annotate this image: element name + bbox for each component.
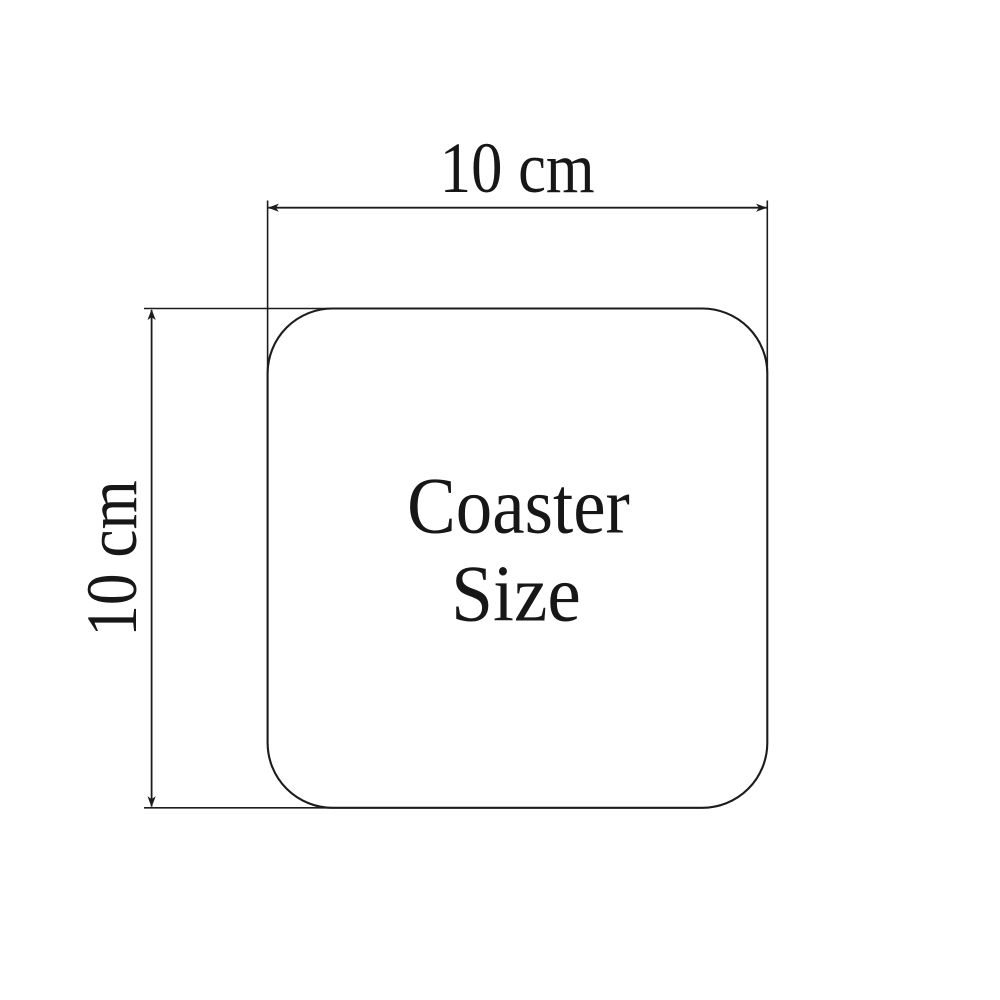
svg-text:10 cm: 10 cm: [440, 128, 595, 208]
svg-text:Coaster: Coaster: [407, 460, 630, 550]
svg-text:Size: Size: [451, 548, 581, 638]
svg-text:10 cm: 10 cm: [72, 480, 152, 637]
